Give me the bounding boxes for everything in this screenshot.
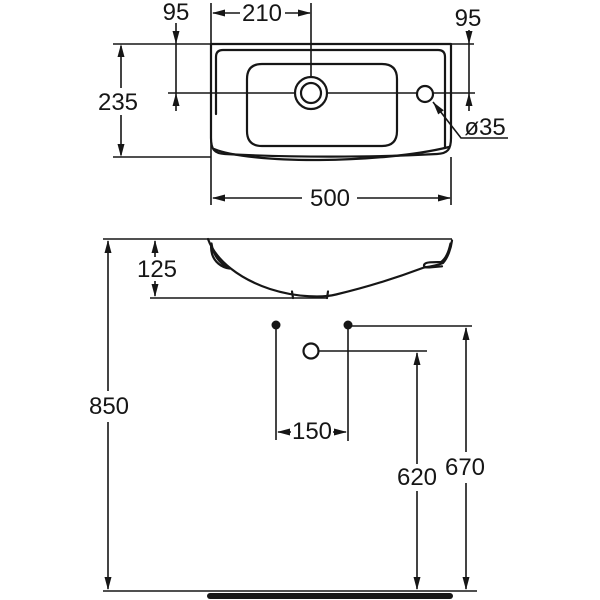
arrowhead-up	[466, 93, 473, 106]
arrowhead-down	[466, 31, 473, 44]
floor	[103, 591, 477, 599]
arrowhead-down	[118, 144, 125, 157]
drain-outlet	[304, 326, 473, 359]
dim-label-tap-offset: 210	[242, 0, 282, 27]
right-bolt-dot	[344, 321, 353, 330]
arrowhead-down	[152, 284, 159, 297]
front-view: 125 850 150 620 670	[89, 239, 485, 599]
top-view: 95 210 95 235 500	[98, 0, 508, 212]
dim-label-tap-setback: 95	[163, 0, 190, 26]
dimension-width: 500	[212, 185, 451, 212]
dim-label-bolt-height: 670	[445, 454, 485, 481]
arrowhead-up	[152, 240, 159, 253]
arrowhead-right	[298, 10, 311, 17]
dim-label-drain-height: 620	[397, 464, 437, 491]
arrowhead-up	[118, 44, 125, 57]
dimension-rim-height: 850	[89, 240, 129, 590]
dimension-bolt-height: 670	[445, 327, 485, 590]
dim-label-depth: 235	[98, 89, 138, 116]
washbasin-technical-drawing: 95 210 95 235 500	[0, 0, 600, 600]
dim-label-hole-diameter: ø35	[464, 114, 505, 141]
dim-label-basin-height: 125	[137, 256, 177, 283]
basin-silhouette	[208, 239, 452, 296]
arrowhead-up	[173, 93, 180, 106]
arrowhead-down	[105, 577, 112, 590]
arrowhead-right	[438, 195, 451, 202]
dim-label-width: 500	[310, 185, 350, 212]
arrowhead-left	[277, 429, 290, 436]
arrowhead-up	[414, 352, 421, 365]
top-view-basin	[211, 44, 451, 160]
dimension-bolt-spacing: 150	[277, 418, 347, 445]
dim-label-overflow-setback: 95	[455, 5, 482, 32]
floor-bar	[207, 593, 453, 599]
drain-outlet-circle	[304, 344, 319, 359]
dimension-basin-height: 125	[137, 240, 177, 297]
arrowhead-down	[463, 577, 470, 590]
drawing-canvas: 95 210 95 235 500	[0, 0, 600, 600]
arrowhead-left	[212, 195, 225, 202]
dim-label-bolt-spacing: 150	[292, 418, 332, 445]
overflow-hole-circle	[417, 86, 433, 102]
dimension-tap-offset: 210	[212, 0, 311, 27]
dimension-depth: 235	[98, 44, 138, 157]
dim-label-rim-height: 850	[89, 393, 129, 420]
arrowhead-down	[173, 31, 180, 44]
arrowhead-up	[105, 240, 112, 253]
arrowhead-up	[463, 327, 470, 340]
dimension-drain-height: 620	[397, 352, 437, 590]
arrowhead-right	[334, 429, 347, 436]
arrowhead-down	[414, 577, 421, 590]
dimension-tap-setback: 95	[163, 0, 190, 111]
dimension-overflow-setback: 95	[455, 5, 482, 111]
tap-hole-inner-circle	[301, 83, 321, 103]
top-view-extension-lines	[113, 3, 475, 205]
left-bolt-dot	[272, 321, 281, 330]
basin-front-lip-line	[214, 147, 449, 160]
arrowhead-left	[212, 10, 225, 17]
